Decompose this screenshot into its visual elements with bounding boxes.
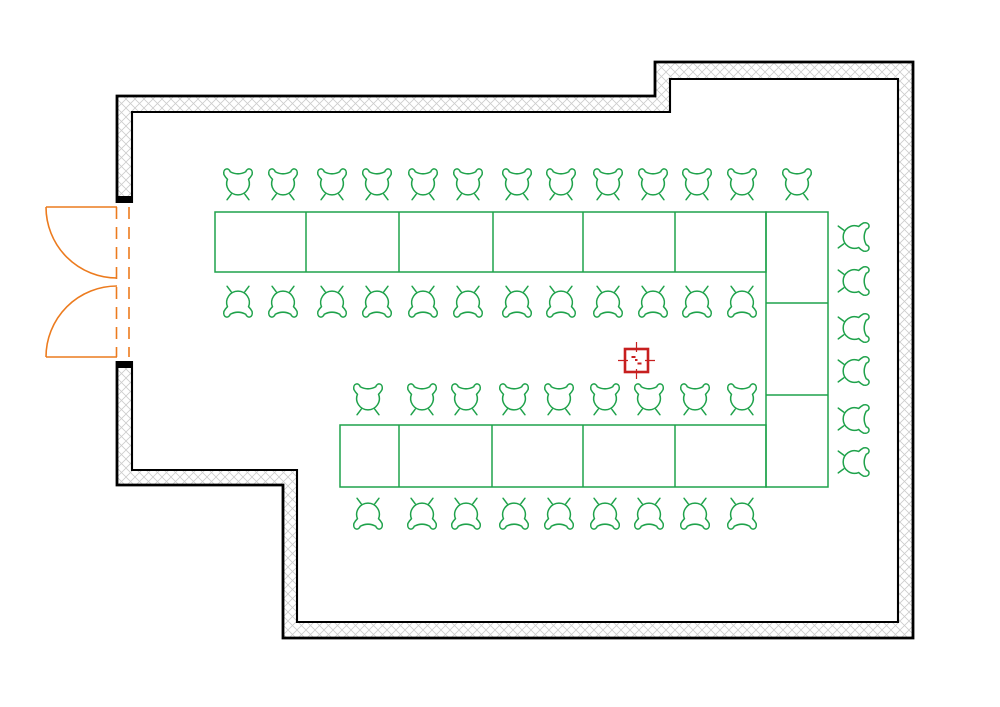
floor-plan [0, 0, 1000, 707]
wall-end-cap [116, 361, 133, 368]
floor-plan-canvas [0, 0, 1000, 707]
wall-end-cap [116, 196, 133, 203]
